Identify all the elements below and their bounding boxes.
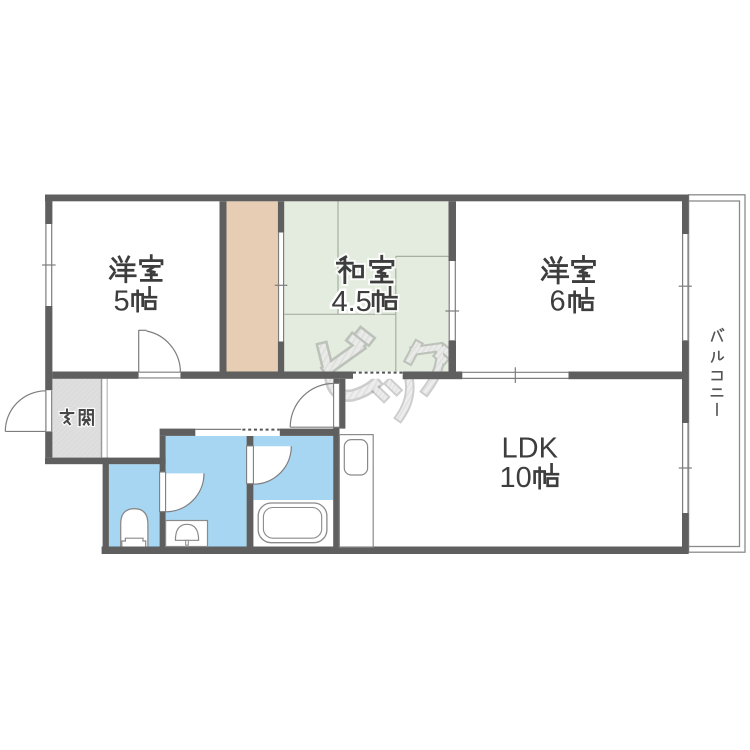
svg-text:4.5: 4.5: [332, 286, 372, 318]
svg-text:10: 10: [500, 462, 532, 494]
svg-text:6: 6: [550, 286, 566, 318]
svg-text:LDK: LDK: [502, 433, 559, 465]
svg-text:5: 5: [114, 286, 130, 318]
